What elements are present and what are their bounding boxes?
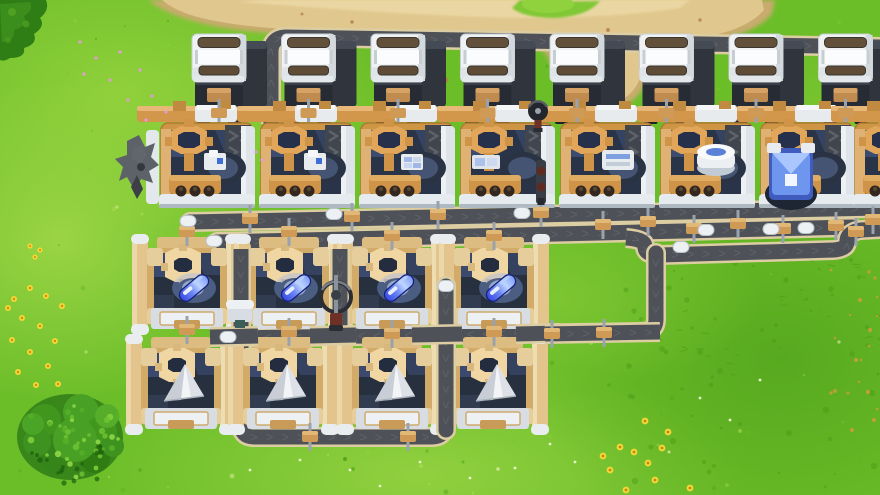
svg-text:>>>>>>>>>: >>>>>>>>> [439,292,454,432]
